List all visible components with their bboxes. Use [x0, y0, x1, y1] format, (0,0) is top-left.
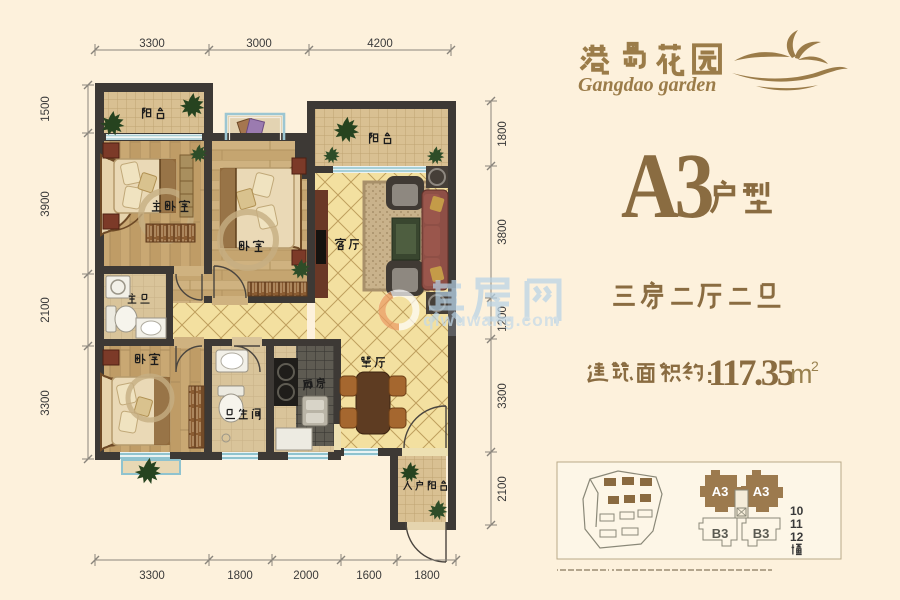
svg-text:3300: 3300 [139, 38, 165, 50]
svg-text:A3: A3 [712, 484, 729, 499]
svg-text:3000: 3000 [246, 38, 272, 50]
svg-text:1600: 1600 [356, 570, 382, 582]
svg-text:2100: 2100 [497, 476, 509, 502]
svg-text:1800: 1800 [414, 570, 440, 582]
svg-text:4200: 4200 [367, 38, 393, 50]
svg-text:B3: B3 [753, 526, 770, 541]
svg-text:2000: 2000 [293, 570, 319, 582]
svg-text:2100: 2100 [40, 297, 52, 323]
svg-text:3300: 3300 [497, 383, 509, 409]
svg-text:1800: 1800 [227, 570, 253, 582]
svg-text:117.35: 117.35 [708, 353, 795, 394]
svg-text:3900: 3900 [40, 191, 52, 217]
svg-text:1800: 1800 [497, 121, 509, 147]
svg-text:Gangdao garden: Gangdao garden [578, 74, 716, 96]
svg-text:10: 10 [790, 504, 804, 518]
svg-text:12: 12 [790, 530, 804, 544]
svg-text:qiwuwang.com: qiwuwang.com [423, 310, 560, 330]
svg-text:3300: 3300 [139, 570, 165, 582]
svg-text:m: m [790, 359, 813, 389]
svg-text:11: 11 [790, 517, 803, 531]
svg-text:2: 2 [811, 358, 819, 374]
svg-text:1500: 1500 [40, 96, 52, 122]
svg-text:3300: 3300 [40, 390, 52, 416]
svg-text:A3: A3 [621, 134, 712, 237]
svg-text:A3: A3 [753, 484, 770, 499]
svg-text:B3: B3 [712, 526, 729, 541]
svg-text:3800: 3800 [497, 219, 509, 245]
